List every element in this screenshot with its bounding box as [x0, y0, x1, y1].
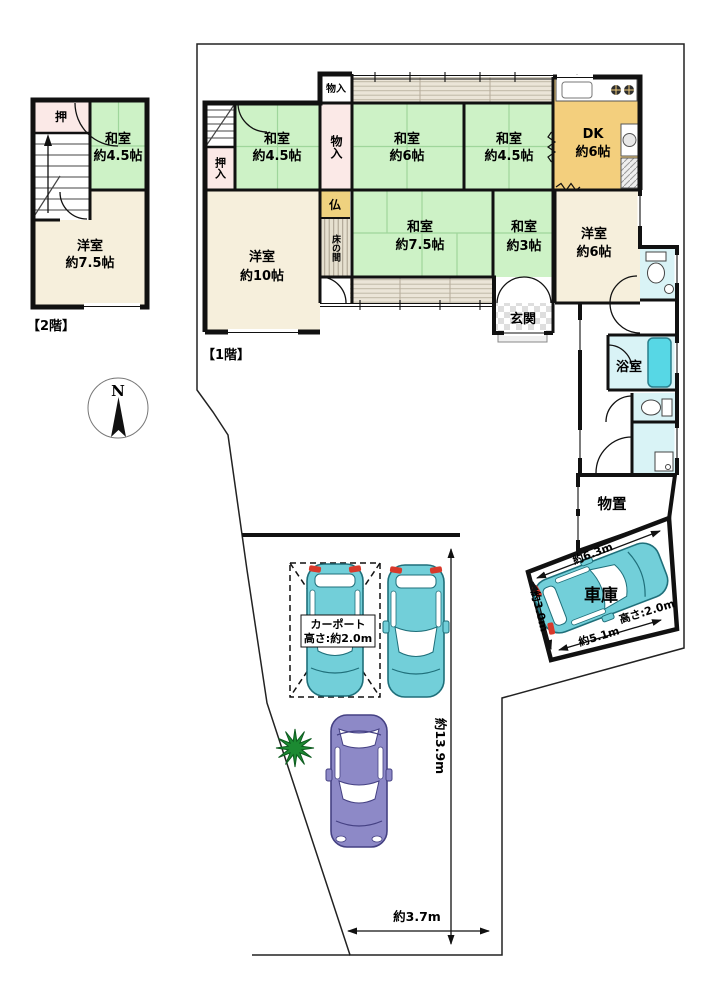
floorplan-page: 押 和室 約4.5帖 洋室 約7.5帖 【2階】 N	[0, 0, 714, 1000]
floor1-plan: 押入 和室 約4.5帖 物入 物入 和室 約6帖 和室 約4.5帖 DK 約6帖…	[202, 72, 680, 551]
compass-icon: N	[88, 378, 148, 438]
label-site-depth: 約13.9m	[433, 718, 448, 774]
label-washitsu-2f-size: 約4.5帖	[93, 148, 142, 164]
kitchen-sink-icon	[562, 82, 592, 98]
label-carport-line1: カーポート	[311, 617, 366, 631]
caption-floor1: 【1階】	[202, 347, 250, 363]
label-washitsu-2f-name: 和室	[105, 131, 131, 147]
label-youshitsu-10-size: 約10帖	[240, 268, 284, 284]
label-dk-name: DK	[583, 127, 605, 142]
label-washitsu-75-name: 和室	[407, 219, 433, 235]
carport-block: カーポート 高さ:約2.0m	[290, 563, 449, 697]
label-washitsu-6-size: 約6帖	[389, 148, 424, 164]
label-youshitsu-6-name: 洋室	[581, 226, 607, 242]
toilet-2-icon	[642, 399, 673, 416]
label-site-frontage: 約3.7m	[393, 909, 441, 924]
label-genkan: 玄関	[510, 311, 536, 327]
dk-door-panel	[621, 158, 638, 188]
washer-icon	[623, 134, 636, 147]
parked-car-icon	[383, 565, 449, 697]
dk-appliance-icons	[621, 124, 638, 188]
label-washitsu-45a-name: 和室	[264, 131, 290, 147]
label-youshitsu-10-name: 洋室	[249, 249, 275, 265]
label-dk-size: 約6帖	[575, 144, 610, 160]
label-washitsu-75-size: 約7.5帖	[395, 237, 444, 253]
label-washitsu-45b-name: 和室	[496, 131, 522, 147]
tree-icon	[276, 729, 314, 767]
label-youshitsu-2f-size: 約7.5帖	[65, 255, 114, 271]
compass-north-label: N	[111, 382, 125, 400]
washroom-appliance-icon	[655, 452, 673, 471]
veranda-north	[352, 77, 553, 103]
label-tokonoma: 床の間	[330, 233, 341, 262]
label-bathroom: 浴室	[616, 359, 642, 375]
label-youshitsu-2f-name: 洋室	[77, 238, 103, 254]
label-shako: 車庫	[584, 585, 618, 606]
bathtub-icon	[648, 338, 671, 387]
label-monooki: 物置	[598, 495, 627, 513]
label-carport-line2: 高さ:約2.0m	[304, 631, 372, 645]
label-washitsu-3-size: 約3帖	[506, 238, 541, 254]
floor2-plan: 押 和室 約4.5帖 洋室 約7.5帖 【2階】	[27, 100, 147, 334]
floorplan-drawing: 押 和室 約4.5帖 洋室 約7.5帖 【2階】 N	[0, 0, 714, 1000]
label-washitsu-6-name: 和室	[394, 131, 420, 147]
label-monoire: 物入	[329, 134, 343, 160]
label-washitsu-3-name: 和室	[511, 219, 537, 235]
label-monoire-small: 物入	[326, 82, 346, 95]
label-oshiire-1f: 押入	[214, 156, 227, 180]
label-youshitsu-6-size: 約6帖	[576, 244, 611, 260]
label-washitsu-45b-size: 約4.5帖	[484, 148, 533, 164]
label-washitsu-45a-size: 約4.5帖	[252, 148, 301, 164]
label-butsuma: 仏	[329, 198, 341, 212]
caption-floor2: 【2階】	[27, 318, 75, 334]
label-oshi-2f: 押	[55, 109, 67, 124]
sedan-car-icon	[326, 715, 392, 847]
veranda-south	[350, 277, 494, 303]
